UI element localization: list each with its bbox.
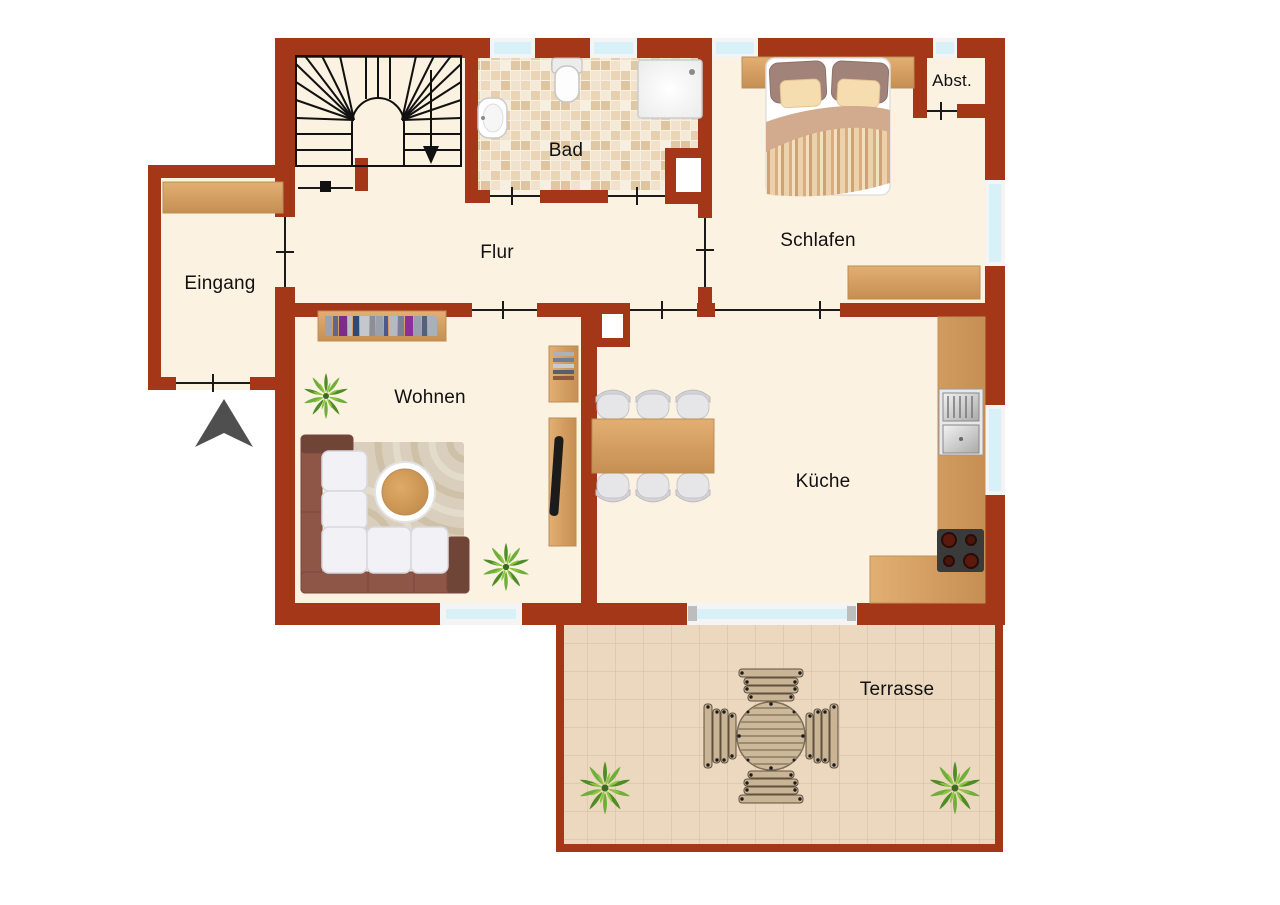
room-label-eingang: Eingang (184, 273, 255, 295)
room-label-flur: Flur (480, 242, 514, 264)
shower (638, 60, 702, 118)
shaft (602, 314, 623, 338)
chair (636, 473, 670, 502)
chair (596, 473, 630, 502)
chair (676, 390, 710, 419)
washbasin (478, 98, 507, 138)
toilet (552, 58, 582, 102)
room-label-bad: Bad (549, 140, 583, 162)
window (933, 38, 957, 58)
terrace-door-window (687, 603, 857, 625)
window (985, 180, 1005, 266)
room-label-kueche: Küche (796, 471, 851, 493)
terrace (556, 620, 1003, 852)
window (440, 603, 522, 625)
terrace-chair (704, 704, 736, 768)
window (985, 405, 1005, 495)
terrace-chair (806, 704, 838, 768)
entrance-arrow-icon (195, 399, 253, 447)
room-label-schlafen: Schlafen (780, 230, 856, 252)
stove (937, 529, 984, 572)
floor-plan-graphics (0, 0, 1280, 905)
chair (636, 390, 670, 419)
double-bed (766, 58, 890, 196)
chair (676, 473, 710, 502)
entrance-wardrobe (163, 182, 283, 213)
window (712, 38, 758, 58)
bookshelf (318, 311, 446, 341)
window (590, 38, 637, 58)
kitchen-sink (939, 389, 983, 455)
terrace-chair (739, 771, 803, 803)
chair (596, 390, 630, 419)
dining-table (592, 419, 714, 473)
floor-plan: Bad Flur Schlafen Abst. Eingang Wohnen K… (0, 0, 1280, 905)
shaft (676, 158, 701, 192)
tv-sideboard (549, 346, 578, 546)
room-label-abstellraum: Abst. (932, 71, 972, 91)
room-label-wohnen: Wohnen (394, 387, 466, 409)
coffee-table (375, 462, 435, 522)
room-label-terrasse: Terrasse (860, 679, 934, 701)
window (490, 38, 535, 58)
terrace-chair (739, 669, 803, 701)
sideboard (848, 266, 980, 299)
